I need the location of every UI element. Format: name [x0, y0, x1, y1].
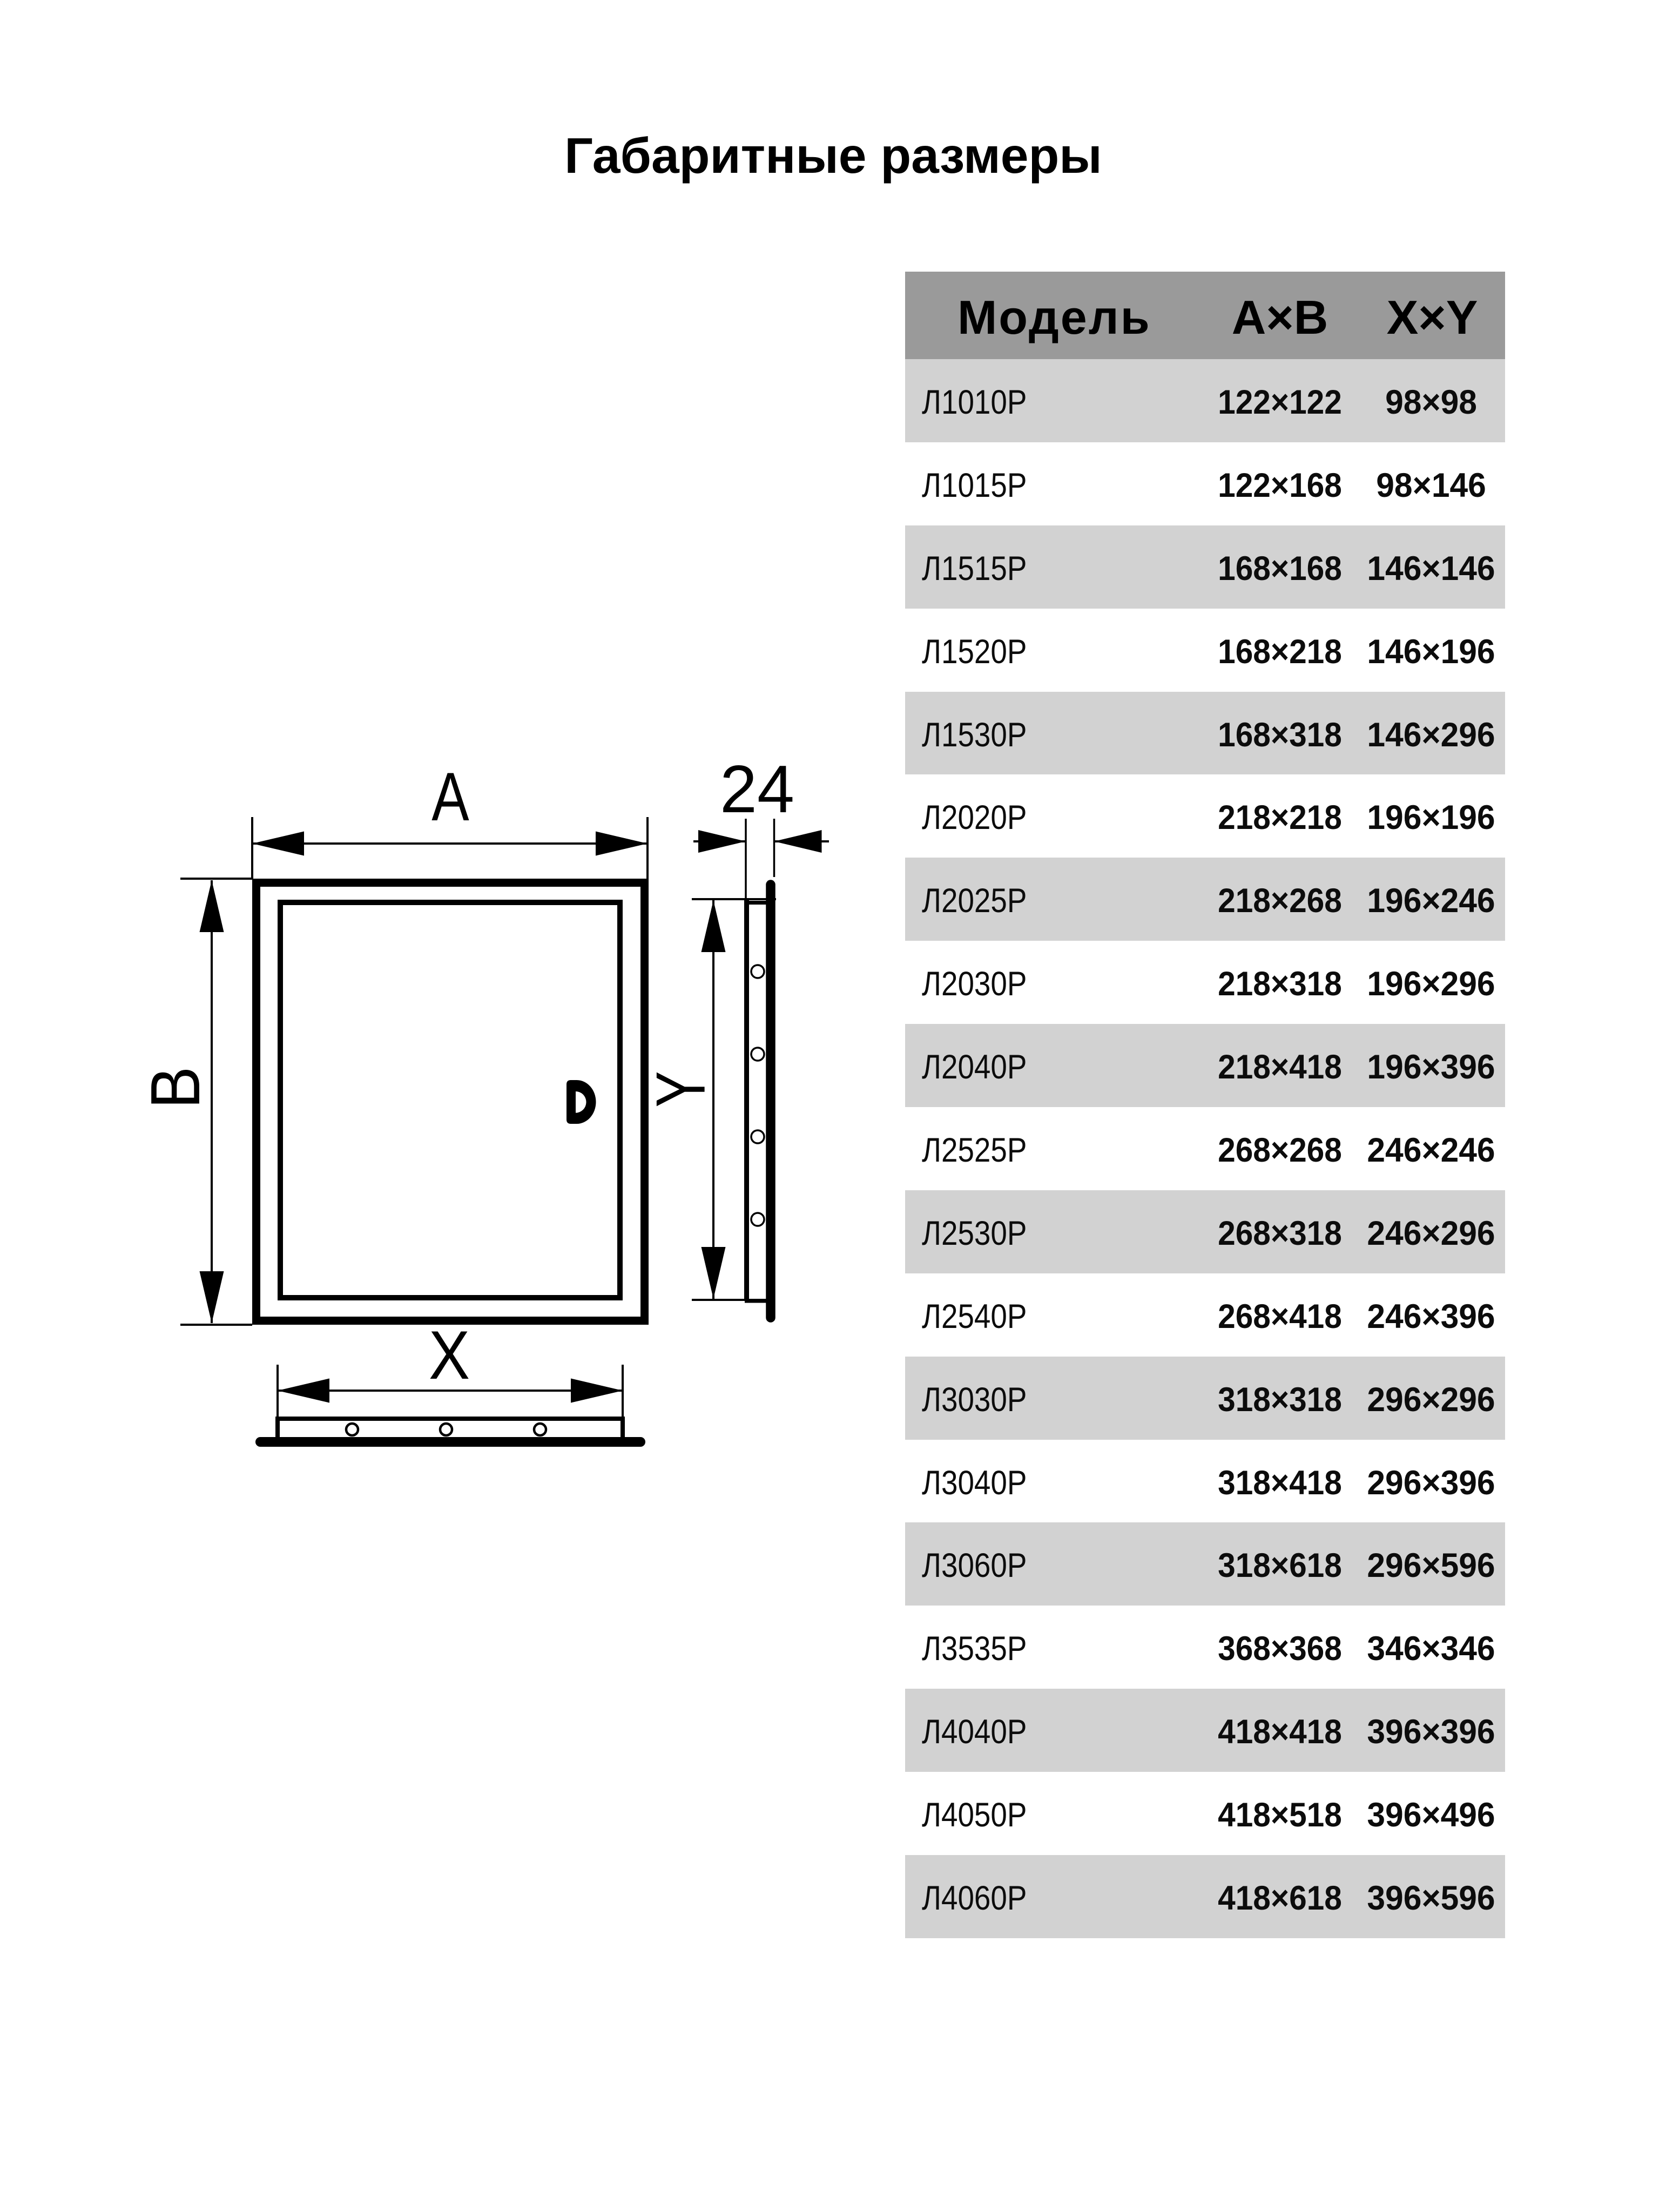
svg-text:X: X: [429, 1317, 470, 1393]
svg-text:A: A: [431, 758, 469, 835]
svg-text:Y: Y: [642, 1071, 720, 1107]
svg-text:24: 24: [720, 752, 794, 827]
svg-text:B: B: [137, 1067, 214, 1109]
